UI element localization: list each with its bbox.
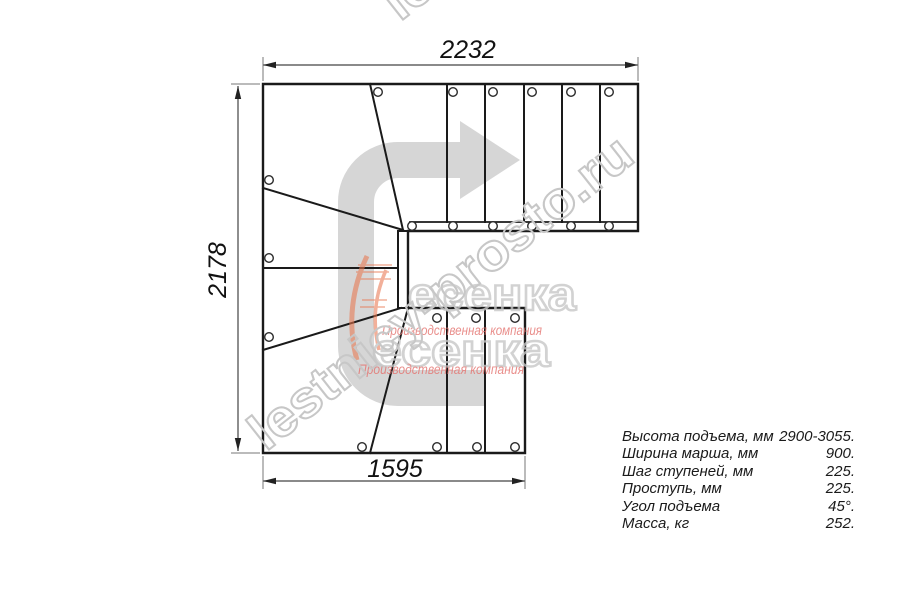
dim-value-left: 2178 xyxy=(204,242,232,299)
screw-hole xyxy=(265,176,274,185)
screw-hole xyxy=(489,88,498,97)
spec-row: Угол подъема45°. xyxy=(622,498,855,515)
spec-label: Высота подъема, мм xyxy=(622,428,774,445)
dim-arrow xyxy=(235,86,241,99)
spec-row: Шаг ступеней, мм225. xyxy=(622,463,855,480)
dim-value-top: 2232 xyxy=(439,36,496,64)
screw-hole xyxy=(358,443,367,452)
screw-hole xyxy=(265,254,274,263)
spec-label: Угол подъема xyxy=(622,498,720,515)
screw-hole xyxy=(528,88,537,97)
spec-value: 252. xyxy=(826,515,855,532)
spec-label: Шаг ступеней, мм xyxy=(622,463,753,480)
ext-line xyxy=(231,84,260,453)
spec-value: 225. xyxy=(826,463,855,480)
screw-hole xyxy=(511,443,520,452)
spec-value: 2900-3055. xyxy=(779,428,855,445)
spec-value: 900. xyxy=(826,445,855,462)
spec-row: Проступь, мм225. xyxy=(622,480,855,497)
screw-hole xyxy=(605,222,614,231)
screw-hole xyxy=(473,443,482,452)
screw-hole xyxy=(449,88,458,97)
dim-value-bottom: 1595 xyxy=(367,455,423,483)
screw-hole xyxy=(605,88,614,97)
direction-arrow-head xyxy=(460,121,520,199)
spec-label: Проступь, мм xyxy=(622,480,722,497)
specs-table: Высота подъема, мм2900-3055.Ширина марша… xyxy=(622,428,855,532)
spec-label: Масса, кг xyxy=(622,515,689,532)
dim-arrow xyxy=(512,478,525,484)
spec-row: Ширина марша, мм900. xyxy=(622,445,855,462)
dim-arrow xyxy=(263,62,276,68)
screw-hole xyxy=(433,443,442,452)
site-watermark-fragment: lestnicy-prosto.ru xyxy=(372,0,779,31)
screw-hole xyxy=(374,88,383,97)
dim-arrow xyxy=(235,438,241,451)
spec-row: Высота подъема, мм2900-3055. xyxy=(622,428,855,445)
spec-label: Ширина марша, мм xyxy=(622,445,758,462)
screw-hole xyxy=(567,88,576,97)
watermarks: есенка Производственная компания есенка … xyxy=(238,0,779,461)
spec-value: 225. xyxy=(826,480,855,497)
screw-hole xyxy=(265,333,274,342)
dim-arrow xyxy=(625,62,638,68)
screw-hole xyxy=(408,222,417,231)
dim-arrow xyxy=(263,478,276,484)
spec-row: Масса, кг252. xyxy=(622,515,855,532)
screw-hole xyxy=(449,222,458,231)
spec-value: 45°. xyxy=(828,498,855,515)
